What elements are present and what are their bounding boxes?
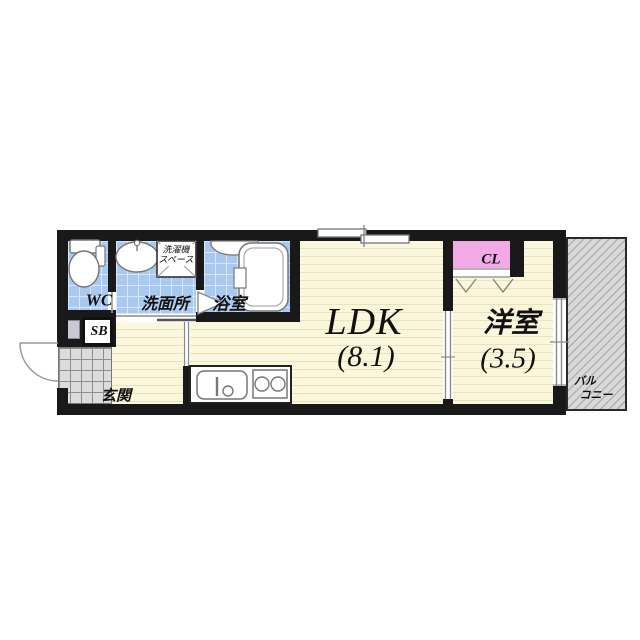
western-room-label: 洋室 — [483, 310, 539, 338]
entrance-label: 玄関 — [101, 390, 131, 405]
laundry-label-line1: 洗濯機 — [162, 246, 189, 255]
toilet-icon — [69, 240, 105, 287]
hall-ldk-door — [183, 322, 190, 366]
ldk-window — [318, 225, 409, 247]
western-room-size-label: (3.5) — [480, 345, 536, 374]
wc-label: WC — [86, 292, 112, 309]
kitchen-icon — [190, 366, 291, 403]
bath-label: 浴室 — [212, 296, 246, 313]
ldk-label: LDK — [326, 303, 403, 341]
ldk-size-label: (8.1) — [337, 342, 394, 372]
ldk-western-sliding-door — [441, 311, 455, 399]
closet-label: CL — [481, 253, 500, 268]
floorplan-canvas: WC 洗面所 洗濯機 スペース 浴室 LDK (8.1) 洋室 (3.5) CL… — [0, 0, 640, 640]
balcony-label-line1: バル — [574, 377, 596, 388]
entrance-door-swing — [20, 343, 58, 381]
washroom-label: 洗面所 — [141, 297, 189, 313]
laundry-label-line2: スペース — [159, 256, 194, 265]
washroom-sliding-door — [116, 314, 196, 323]
fixtures-layer — [0, 0, 640, 640]
closet-door — [453, 268, 513, 292]
western-window — [550, 298, 569, 386]
balcony-label-line2: コニー — [580, 391, 613, 402]
washbasin-icon — [116, 240, 158, 272]
shoe-box-label: SB — [90, 325, 107, 339]
